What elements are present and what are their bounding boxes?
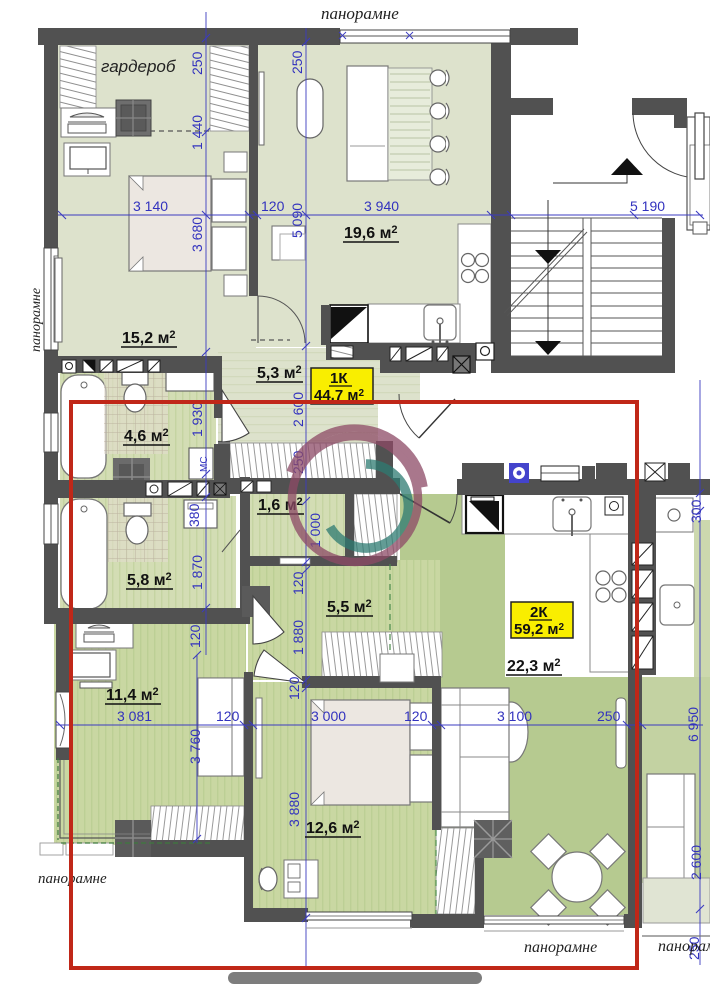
svg-text:5,5 м2: 5,5 м2 xyxy=(327,598,372,616)
svg-text:4,6 м2: 4,6 м2 xyxy=(124,427,169,445)
svg-text:1 930: 1 930 xyxy=(189,402,205,437)
svg-text:5 190: 5 190 xyxy=(630,198,665,214)
svg-text:11,4 м2: 11,4 м2 xyxy=(106,686,159,704)
svg-text:5,8 м2: 5,8 м2 xyxy=(127,571,172,589)
svg-text:панорамне: панорамне xyxy=(29,288,44,352)
svg-text:1 440: 1 440 xyxy=(189,115,205,150)
svg-text:250: 250 xyxy=(597,708,621,724)
svg-text:300: 300 xyxy=(688,499,704,523)
svg-text:3 140: 3 140 xyxy=(133,198,168,214)
svg-text:250: 250 xyxy=(189,51,205,75)
svg-text:панорамне: панорамне xyxy=(524,939,597,956)
svg-text:19,6 м2: 19,6 м2 xyxy=(344,224,398,242)
svg-text:15,2 м2: 15,2 м2 xyxy=(122,329,176,347)
svg-text:1К: 1К xyxy=(330,370,348,387)
svg-text:22,3 м2: 22,3 м2 xyxy=(507,657,561,675)
svg-text:3 081: 3 081 xyxy=(117,708,152,724)
svg-text:59,2 м2: 59,2 м2 xyxy=(514,621,564,638)
svg-text:3 000: 3 000 xyxy=(311,708,346,724)
svg-text:3 100: 3 100 xyxy=(497,708,532,724)
svg-text:5 090: 5 090 xyxy=(289,203,305,238)
svg-text:1 870: 1 870 xyxy=(189,555,205,590)
svg-text:панорамне: панорамне xyxy=(658,938,710,955)
svg-text:3 880: 3 880 xyxy=(286,792,302,827)
svg-text:120: 120 xyxy=(261,198,285,214)
svg-text:120: 120 xyxy=(404,708,428,724)
svg-text:5,3 м2: 5,3 м2 xyxy=(257,364,302,382)
svg-text:3 680: 3 680 xyxy=(189,217,205,252)
svg-text:2К: 2К xyxy=(530,604,548,621)
svg-text:2 600: 2 600 xyxy=(290,392,306,427)
svg-text:гардероб: гардероб xyxy=(101,57,177,76)
svg-text:120: 120 xyxy=(286,676,302,700)
svg-text:1 880: 1 880 xyxy=(290,620,306,655)
svg-text:12,6 м2: 12,6 м2 xyxy=(306,819,360,837)
svg-text:6 950: 6 950 xyxy=(685,707,701,742)
svg-text:120: 120 xyxy=(290,571,306,595)
svg-text:380: 380 xyxy=(186,503,202,527)
svg-text:120: 120 xyxy=(216,708,240,724)
svg-text:3 940: 3 940 xyxy=(364,198,399,214)
svg-text:2 600: 2 600 xyxy=(688,845,704,880)
svg-text:120: 120 xyxy=(187,624,203,648)
svg-text:250: 250 xyxy=(289,50,305,74)
svg-text:МС: МС xyxy=(199,456,210,472)
svg-text:панорамне: панорамне xyxy=(321,4,399,23)
svg-text:3 760: 3 760 xyxy=(187,729,203,764)
